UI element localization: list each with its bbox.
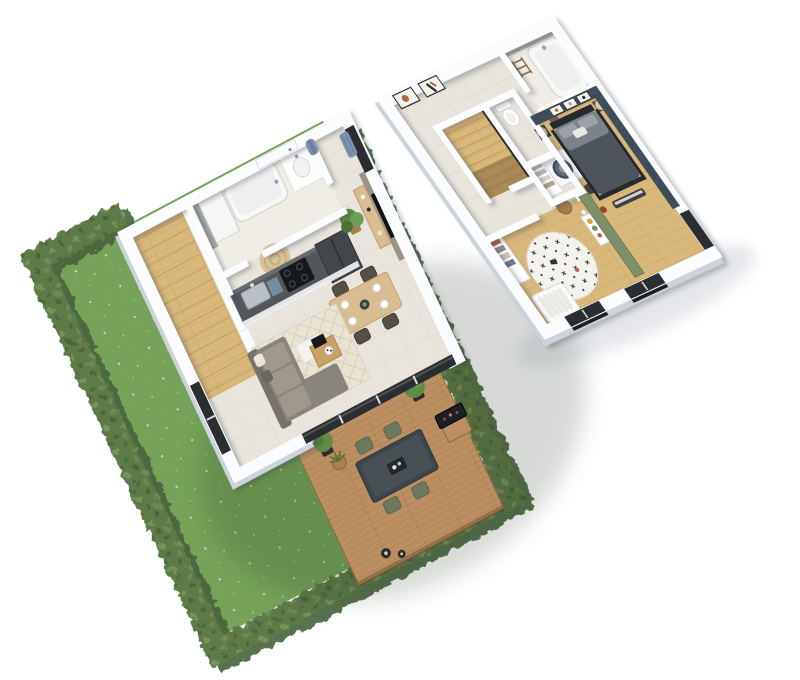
floorplan-canvas: 3D isometric cutaway floor plan of a two…	[0, 0, 800, 680]
floorplan-render: 3D isometric cutaway floor plan of a two…	[0, 0, 800, 680]
